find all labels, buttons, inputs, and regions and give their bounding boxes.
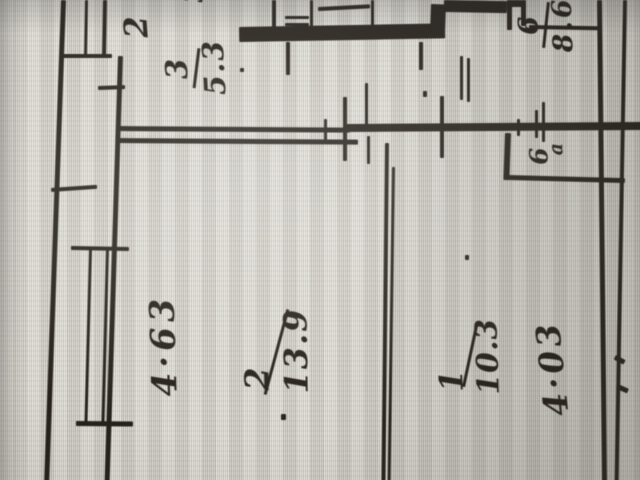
main-wall-upper bbox=[116, 126, 350, 133]
dimension-label-top: 2 bbox=[119, 15, 152, 39]
top-edge-line bbox=[318, 4, 370, 11]
dimension-tick bbox=[440, 96, 444, 158]
closet-label: 6 а bbox=[529, 143, 565, 166]
floorplan-drawing: 2 3 3 5.3 6 8.6 6 а 4·63 bbox=[0, 0, 640, 480]
right-wall-outer bbox=[615, 0, 627, 480]
closet-wall-bottom bbox=[507, 175, 625, 183]
room-1-label: 1 10.3 bbox=[433, 317, 505, 396]
wall-stub bbox=[102, 0, 106, 56]
window-symbol-line bbox=[84, 249, 92, 423]
wall-stub bbox=[84, 0, 88, 56]
room-3-area: 5.3 bbox=[199, 38, 231, 96]
ink-dot bbox=[465, 255, 469, 260]
room-2-label: 2 13.9 bbox=[239, 307, 313, 396]
closet-wall-left bbox=[503, 133, 510, 180]
wall-stub bbox=[419, 42, 423, 70]
wall-chunk bbox=[507, 0, 526, 7]
dimension-label-fragment: 3 bbox=[180, 0, 207, 4]
dimension-label-left: 4·63 bbox=[145, 293, 183, 397]
dimension-tick bbox=[535, 110, 538, 138]
wall-stub bbox=[286, 42, 290, 75]
dimension-tick bbox=[343, 97, 347, 161]
door-line bbox=[460, 56, 463, 100]
main-wall-lower bbox=[116, 138, 358, 144]
window-symbol-cap bbox=[71, 246, 129, 251]
center-wall bbox=[388, 167, 395, 480]
shaft-wall bbox=[310, 0, 313, 28]
dimension-tick bbox=[517, 119, 520, 136]
right-wall-inner bbox=[597, 0, 607, 480]
room-3-label: 3 5.3 bbox=[162, 38, 231, 98]
wall-stub bbox=[371, 0, 374, 28]
upper-wall-band bbox=[239, 23, 445, 42]
dimension-tick bbox=[324, 119, 327, 143]
ink-dot bbox=[240, 68, 244, 72]
main-wall-right bbox=[346, 122, 640, 132]
closet-suffix: а bbox=[549, 143, 565, 156]
dimension-tick bbox=[367, 136, 370, 164]
floorplan-photo: 2 3 3 5.3 6 8.6 6 а 4·63 bbox=[0, 0, 640, 480]
dimension-tick bbox=[365, 83, 368, 129]
dimension-label-right: 4·03 bbox=[531, 318, 574, 417]
ink-dot bbox=[423, 91, 427, 97]
shaft-tick bbox=[285, 16, 309, 19]
shaft-wall bbox=[272, 0, 276, 32]
ink-dot bbox=[281, 414, 286, 420]
door-line bbox=[467, 58, 470, 102]
outer-left-wall bbox=[44, 0, 65, 480]
top-edge-chunk bbox=[444, 0, 507, 13]
shaft-tick bbox=[285, 23, 309, 26]
room-3-number: 3 bbox=[162, 58, 193, 80]
dimension-tick bbox=[542, 102, 545, 142]
